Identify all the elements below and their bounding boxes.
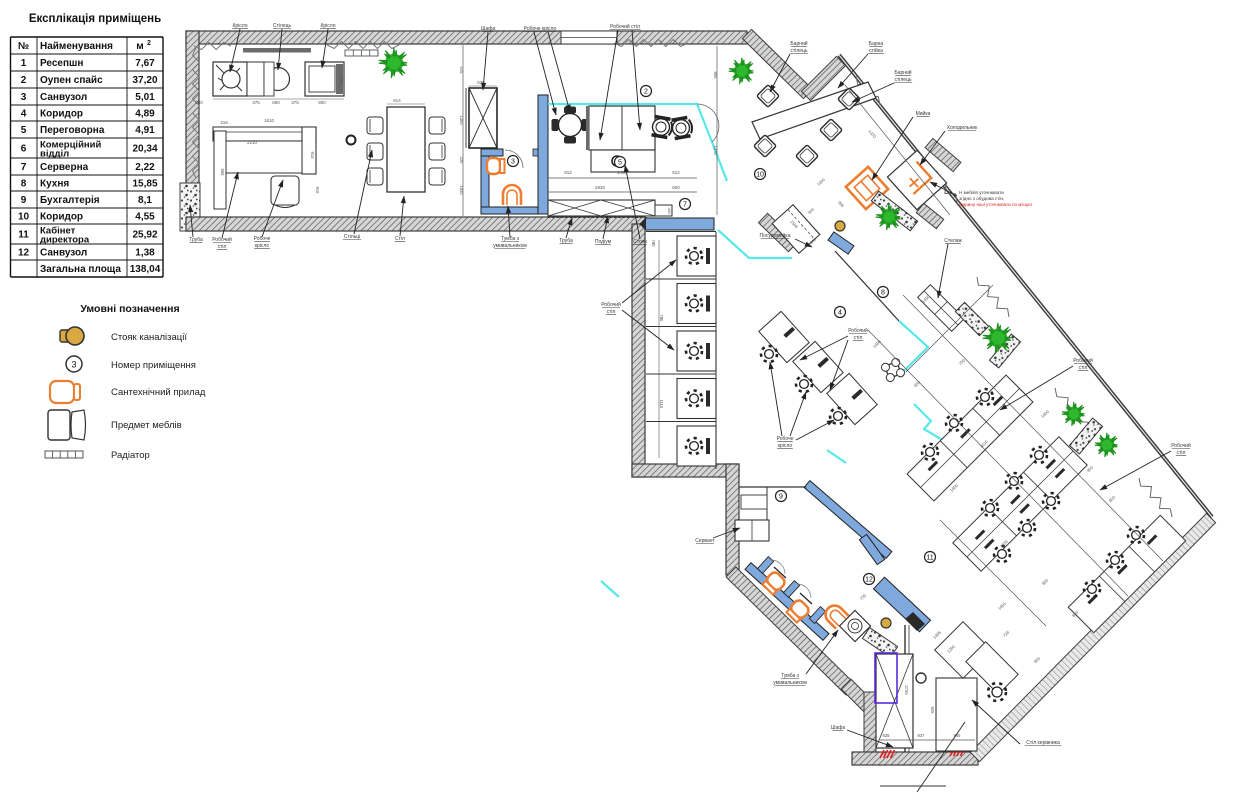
svg-text:10: 10 [18,212,30,223]
svg-text:4,89: 4,89 [135,109,155,120]
svg-text:Труба: Труба [189,237,203,243]
svg-text:780: 780 [659,315,664,323]
svg-text:Переговорна: Переговорна [40,125,105,136]
svg-text:416: 416 [220,120,228,125]
svg-text:2755: 2755 [904,685,909,695]
svg-text:відділ: відділ [40,149,69,160]
svg-text:8: 8 [21,179,27,190]
svg-text:4: 4 [838,309,842,316]
svg-text:914: 914 [310,152,315,160]
svg-text:Робочий: Робочий [848,327,868,334]
svg-text:4,91: 4,91 [135,125,155,136]
svg-text:Сервант: Сервант [695,538,715,544]
svg-text:Оупен спайс: Оупен спайс [40,75,103,86]
svg-text:37,20: 37,20 [132,75,157,86]
svg-text:1: 1 [21,58,27,69]
svg-text:стілець: стілець [790,48,807,54]
svg-text:9: 9 [779,493,783,500]
svg-text:стіл: стіл [1079,365,1088,371]
svg-text:400: 400 [667,208,672,215]
svg-text:7: 7 [21,162,27,173]
svg-text:Загальна площа: Загальна площа [40,264,121,275]
svg-text:Робочий: Робочий [601,301,621,308]
svg-text:4,55: 4,55 [135,212,155,223]
svg-text:2930: 2930 [595,185,606,190]
svg-text:375: 375 [252,100,260,105]
svg-text:Стільці: Стільці [344,234,361,240]
svg-text:стіл: стіл [607,309,616,315]
svg-text:Шафа: Шафа [831,725,845,731]
svg-text:800: 800 [195,100,203,105]
svg-text:7,67: 7,67 [135,58,155,69]
svg-text:Робочий: Робочий [1171,442,1191,449]
svg-text:Стіл: Стіл [395,236,405,242]
svg-text:Умовні позначення: Умовні позначення [80,303,179,315]
svg-text:Труба: Труба [559,238,573,244]
svg-text:стіл: стіл [854,335,863,341]
svg-text:745: 745 [339,77,344,85]
svg-text:2210: 2210 [247,140,258,145]
svg-text:Робоче крісло: Робоче крісло [524,26,557,32]
svg-text:1300: 1300 [459,115,464,125]
svg-text:2: 2 [147,40,151,47]
svg-text:Крісло: Крісло [320,23,335,29]
svg-text:Коридор: Коридор [40,109,83,120]
svg-text:Санвузол: Санвузол [40,248,87,259]
svg-text:крісло: крісло [778,443,793,449]
svg-text:1610: 1610 [264,118,275,123]
svg-text:814: 814 [393,98,401,103]
svg-text:Санвузол: Санвузол [40,92,87,103]
svg-text:2: 2 [644,88,648,95]
svg-text:Робоче: Робоче [777,436,794,442]
svg-text:Барний: Барний [894,69,911,76]
svg-text:780: 780 [651,240,656,248]
svg-text:800: 800 [318,100,326,105]
svg-text:4: 4 [21,109,27,120]
svg-text:Шафа: Шафа [481,26,495,32]
svg-text:11: 11 [18,230,29,241]
svg-text:стійка: стійка [869,47,883,54]
svg-text:Стелаж: Стелаж [944,238,962,244]
svg-text:220: 220 [459,157,464,165]
svg-text:600: 600 [672,185,680,190]
svg-text:Барний: Барний [790,40,807,47]
svg-text:937: 937 [918,733,926,738]
svg-text:12: 12 [865,576,873,583]
svg-text:директора: директора [40,235,90,246]
svg-text:Коридор: Коридор [40,212,83,223]
svg-text:912: 912 [564,170,572,175]
svg-text:Барна: Барна [869,41,884,47]
svg-text:Холодильник: Холодильник [947,125,978,131]
svg-text:825: 825 [883,733,891,738]
svg-text:5: 5 [21,125,27,136]
svg-text:м: м [136,41,143,52]
svg-text:Експлікація приміщень: Експлікація приміщень [29,13,161,25]
svg-text:Подіум: Подіум [595,239,612,245]
svg-text:Робочий: Робочий [1073,357,1093,364]
svg-text:Номер приміщення: Номер приміщення [111,360,196,371]
svg-text:стіл: стіл [218,244,227,250]
svg-text:2,22: 2,22 [135,162,155,173]
svg-text:Сантехнічний прилад: Сантехнічний прилад [111,387,206,398]
svg-text:Тумба з: Тумба з [781,673,800,679]
svg-text:20,34: 20,34 [132,144,157,155]
svg-text:крісло: крісло [255,243,270,249]
svg-text:Бухгалтерія: Бухгалтерія [40,195,100,206]
svg-text:Мийка: Мийка [916,110,931,117]
svg-text:Стояк каналізації: Стояк каналізації [111,332,187,343]
svg-text:5,01: 5,01 [135,92,155,103]
svg-text:7: 7 [683,201,687,208]
svg-text:Робочий стіл: Робочий стіл [610,23,640,30]
svg-text:3: 3 [511,158,515,165]
svg-text:12: 12 [18,248,30,259]
svg-text:ширину ніші уточнювати по місц: ширину ніші уточнювати по місцю! [959,202,1032,207]
svg-text:Посудомийка: Посудомийка [759,232,790,239]
svg-text:925: 925 [930,707,935,715]
svg-text:950: 950 [220,169,225,177]
svg-text:9: 9 [21,195,27,206]
svg-text:806: 806 [713,72,718,80]
svg-text:Крісло: Крісло [232,23,247,29]
svg-text:1370: 1370 [713,145,718,155]
svg-text:138,04: 138,04 [130,264,161,275]
svg-text:Стіл керівника: Стіл керівника [1026,740,1060,746]
svg-text:Радіатор: Радіатор [111,450,150,461]
svg-text:Найменування: Найменування [40,41,113,52]
svg-text:912: 912 [672,170,680,175]
svg-text:Н меблів уточнювати: Н меблів уточнювати [959,190,1004,195]
svg-text:1115: 1115 [659,400,664,409]
svg-text:25,92: 25,92 [132,230,157,241]
svg-text:916: 916 [315,187,320,195]
svg-text:11: 11 [926,554,933,561]
svg-text:3: 3 [71,360,76,370]
svg-text:650: 650 [272,100,280,105]
svg-text:10: 10 [756,171,764,178]
svg-text:Серверна: Серверна [40,162,89,173]
svg-text:стіл: стіл [1177,450,1186,456]
svg-text:Ресепшн: Ресепшн [40,58,83,69]
svg-text:15,85: 15,85 [132,179,157,190]
svg-text:8,1: 8,1 [138,195,152,206]
svg-text:Стояк: Стояк [633,239,647,245]
svg-text:згідно з обудова стін,: згідно з обудова стін, [959,196,1004,201]
svg-text:8: 8 [881,289,885,296]
svg-text:515: 515 [459,67,464,75]
svg-text:1,38: 1,38 [135,248,155,259]
svg-text:2: 2 [21,75,27,86]
svg-text:6: 6 [21,144,27,155]
svg-text:375: 375 [291,100,299,105]
svg-text:3: 3 [21,92,27,103]
svg-text:Предмет меблів: Предмет меблів [111,420,182,431]
svg-text:1920: 1920 [459,185,464,195]
svg-text:стілець: стілець [894,77,911,83]
svg-text:5: 5 [618,159,622,166]
svg-text:умивальником: умивальником [773,680,807,686]
svg-text:умивальником: умивальником [493,243,527,249]
svg-text:Кухня: Кухня [40,179,69,190]
svg-text:Стілець: Стілець [273,23,292,29]
svg-text:№: № [18,41,29,52]
